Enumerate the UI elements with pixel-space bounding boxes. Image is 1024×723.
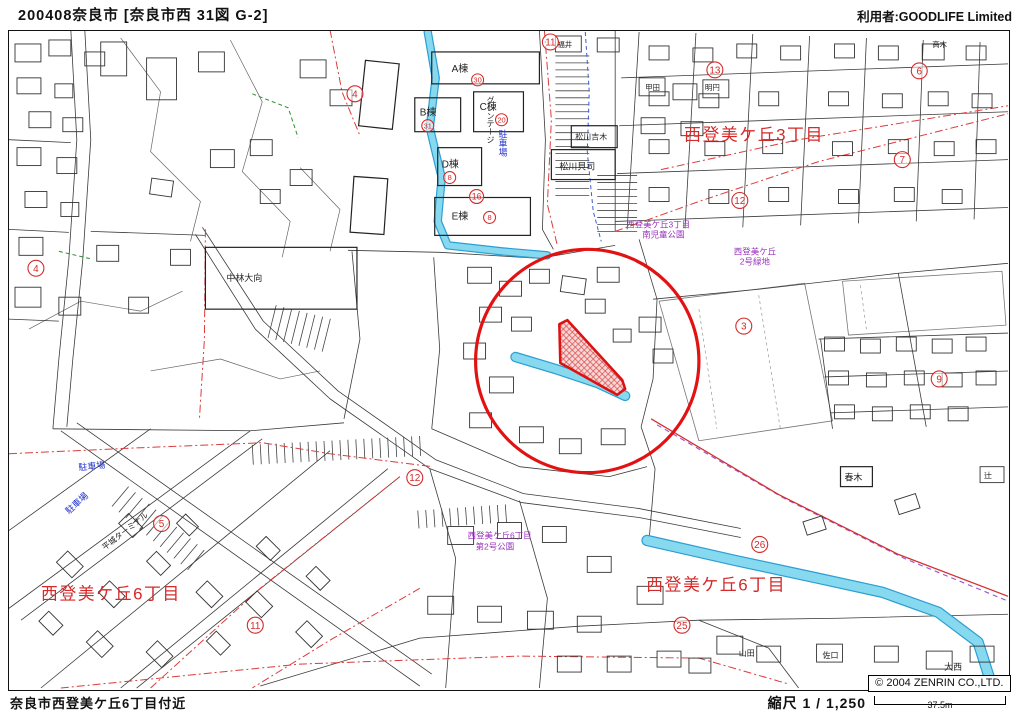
svg-text:明円: 明円: [705, 83, 720, 92]
svg-text:駐車場: 駐車場: [78, 459, 106, 473]
svg-text:7: 7: [900, 155, 906, 166]
svg-text:西登美ケ丘6丁目: 西登美ケ丘6丁目: [646, 575, 786, 594]
svg-text:8: 8: [448, 173, 452, 182]
svg-text:山田: 山田: [739, 648, 755, 658]
svg-text:4: 4: [352, 89, 358, 100]
svg-text:31: 31: [424, 121, 432, 130]
svg-text:16: 16: [472, 192, 482, 202]
svg-text:5: 5: [159, 519, 165, 530]
svg-text:第2号公園: 第2号公園: [476, 541, 515, 551]
copyright-notice: © 2004 ZENRIN CO.,LTD.: [868, 675, 1010, 692]
svg-text:春木: 春木: [844, 472, 862, 483]
svg-text:26: 26: [754, 540, 766, 551]
svg-text:12: 12: [409, 473, 421, 484]
footer: 奈良市西登美ケ丘6丁目付近 縮尺 1 / 1,250 37.5m: [10, 693, 1014, 712]
map-frame: 西登美ケ丘3丁目西登美ケ丘6丁目西登美ケ丘6丁目西登美ケ丘3丁目南児童公園西登美…: [8, 30, 1010, 691]
map-sheet-title: 200408奈良市 [奈良市西 31図 G-2]: [18, 4, 268, 25]
scale-text: 縮尺 1 / 1,250: [768, 693, 866, 713]
svg-text:9: 9: [936, 375, 942, 386]
scale-bar: 37.5m: [874, 696, 1006, 705]
svg-text:25: 25: [676, 621, 688, 632]
svg-text:松川吉木: 松川吉木: [575, 132, 607, 142]
svg-text:11: 11: [545, 38, 556, 49]
svg-text:3: 3: [741, 322, 747, 333]
svg-text:8: 8: [487, 213, 491, 222]
svg-text:B棟: B棟: [420, 106, 437, 119]
svg-text:D棟: D棟: [442, 158, 459, 171]
svg-text:南児童公園: 南児童公園: [642, 229, 684, 239]
red-route-line: [651, 419, 1008, 596]
svg-text:大西: 大西: [944, 661, 962, 672]
svg-text:6: 6: [916, 66, 922, 77]
svg-text:高木: 高木: [932, 39, 947, 49]
svg-text:佐口: 佐口: [823, 650, 839, 660]
svg-text:辻: 辻: [984, 471, 992, 481]
svg-text:E棟: E棟: [452, 209, 469, 222]
svg-text:駐車場: 駐車場: [63, 490, 90, 516]
svg-text:11: 11: [250, 621, 261, 632]
zenrin-map-page: 200408奈良市 [奈良市西 31図 G-2] 利用者:GOODLIFE Li…: [0, 0, 1024, 723]
header: 200408奈良市 [奈良市西 31図 G-2] 利用者:GOODLIFE Li…: [18, 4, 1012, 25]
svg-text:2号緑地: 2号緑地: [740, 256, 771, 266]
field-inner-lines: [699, 285, 866, 431]
purple-route-dashed: [657, 425, 1006, 600]
svg-text:4: 4: [33, 264, 39, 275]
svg-text:中林大向: 中林大向: [226, 272, 262, 283]
svg-text:西登美ケ丘6丁目: 西登美ケ丘6丁目: [41, 584, 181, 603]
svg-text:グレンテージ: グレンテージ: [486, 96, 495, 144]
scale-distance: 37.5m: [927, 700, 952, 710]
svg-text:30: 30: [473, 76, 481, 85]
field-blocks: [659, 271, 1006, 440]
svg-text:A棟: A棟: [452, 62, 469, 75]
svg-text:13: 13: [709, 65, 721, 76]
svg-text:甲田: 甲田: [645, 83, 660, 92]
svg-text:駐車場: 駐車場: [498, 129, 508, 158]
user-license: 利用者:GOODLIFE Limited: [857, 6, 1012, 25]
svg-text:20: 20: [497, 115, 505, 124]
svg-text:西登美ケ丘3丁目: 西登美ケ丘3丁目: [684, 126, 824, 145]
svg-text:12: 12: [734, 196, 746, 207]
map-canvas: 西登美ケ丘3丁目西登美ケ丘6丁目西登美ケ丘6丁目西登美ケ丘3丁目南児童公園西登美…: [9, 31, 1008, 689]
svg-text:福井: 福井: [557, 39, 572, 49]
scale-area: 縮尺 1 / 1,250 37.5m: [768, 693, 1006, 713]
svg-text:松川貝司: 松川貝司: [559, 161, 595, 172]
svg-text:西登美ケ丘3丁目: 西登美ケ丘3丁目: [626, 219, 690, 229]
svg-text:西登美ケ丘6丁目: 西登美ケ丘6丁目: [468, 530, 532, 540]
svg-text:西登美ケ丘: 西登美ケ丘: [734, 246, 777, 256]
